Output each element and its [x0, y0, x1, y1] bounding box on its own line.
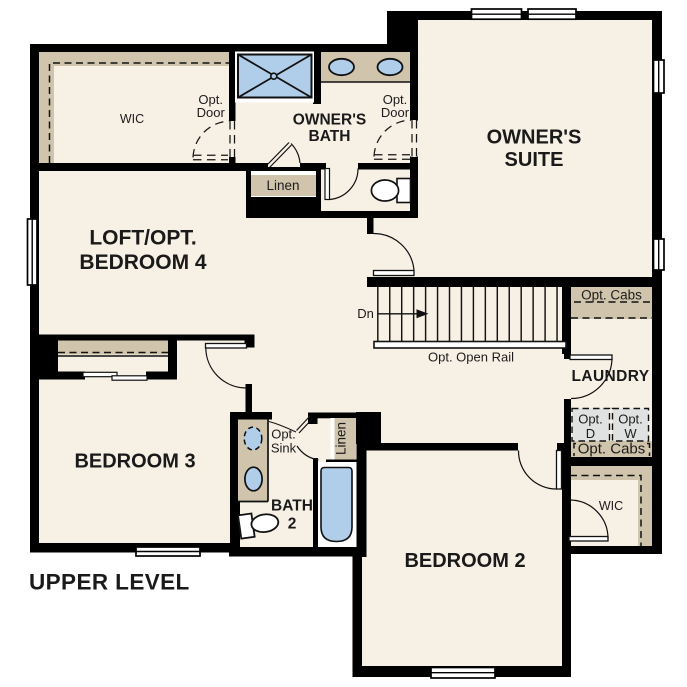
svg-text:LAUNDRY: LAUNDRY [572, 368, 650, 385]
svg-text:WIC: WIC [599, 499, 623, 513]
svg-text:Linen: Linen [266, 178, 299, 193]
svg-text:OWNER'S: OWNER'S [293, 112, 366, 129]
svg-text:Opt.: Opt. [578, 412, 603, 427]
svg-text:Sink: Sink [271, 441, 297, 456]
svg-text:Opt. Cabs: Opt. Cabs [578, 441, 646, 458]
svg-text:D: D [586, 426, 595, 441]
svg-text:BATH: BATH [309, 128, 351, 145]
svg-text:BEDROOM 3: BEDROOM 3 [74, 451, 195, 473]
svg-text:W: W [624, 426, 637, 441]
svg-text:OWNER'S: OWNER'S [487, 127, 582, 149]
svg-text:SUITE: SUITE [505, 149, 564, 171]
svg-text:BEDROOM 4: BEDROOM 4 [79, 251, 207, 274]
svg-text:Linen: Linen [334, 422, 349, 455]
svg-text:WIC: WIC [120, 112, 144, 126]
svg-text:BEDROOM 2: BEDROOM 2 [404, 550, 525, 572]
svg-text:Opt.: Opt. [618, 412, 643, 427]
svg-text:Door: Door [381, 105, 410, 120]
svg-text:Opt. Open Rail: Opt. Open Rail [428, 350, 514, 365]
svg-text:Dn: Dn [357, 306, 374, 321]
svg-text:2: 2 [288, 516, 297, 533]
svg-text:LOFT/OPT.: LOFT/OPT. [89, 227, 196, 250]
svg-text:Opt. Cabs: Opt. Cabs [581, 288, 642, 303]
svg-text:Opt.: Opt. [271, 427, 296, 442]
svg-text:BATH: BATH [271, 498, 313, 515]
svg-text:UPPER LEVEL: UPPER LEVEL [29, 570, 190, 595]
svg-text:Door: Door [197, 105, 226, 120]
